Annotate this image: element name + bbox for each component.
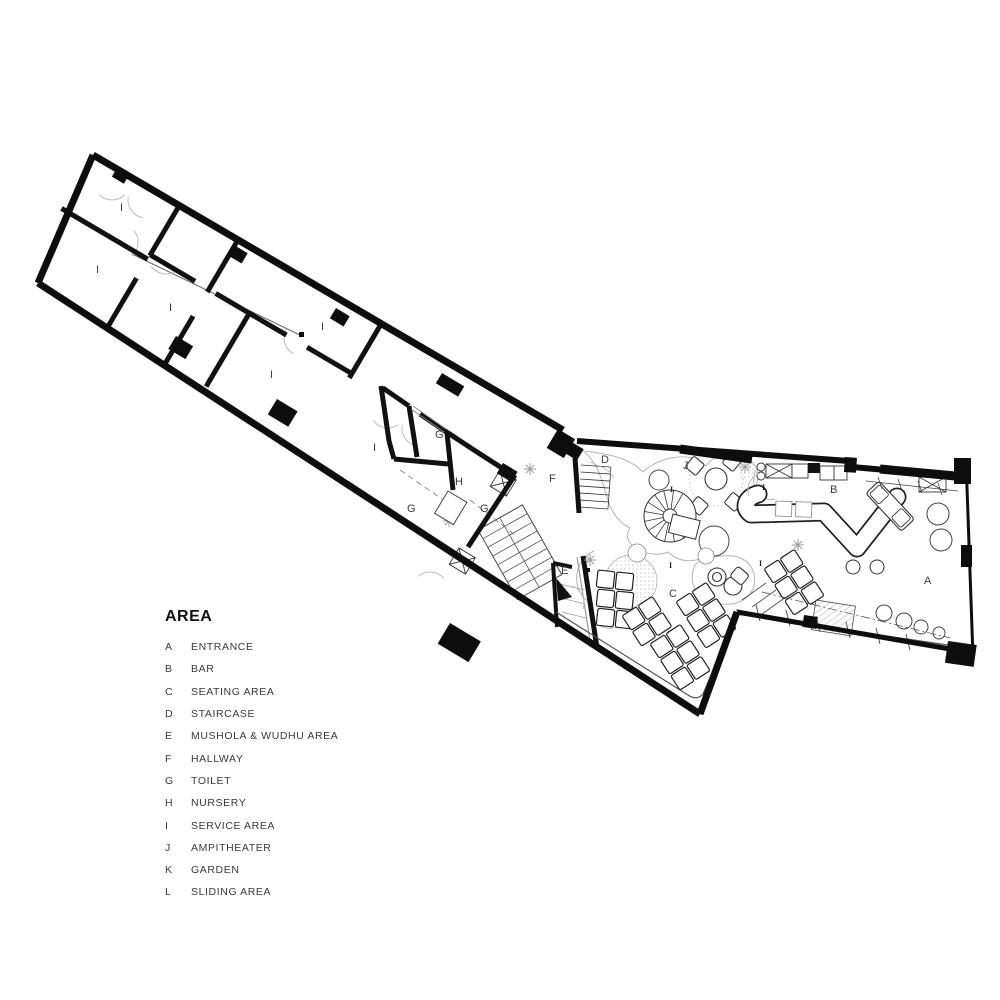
- plan-label-H: H: [455, 476, 463, 488]
- legend-item: L SLIDING AREA: [165, 881, 425, 903]
- legend: AREA A ENTRANCE B BAR C SEATING AREA D S…: [165, 608, 425, 904]
- legend-item: C SEATING AREA: [165, 681, 425, 703]
- legend-item-key: G: [165, 775, 191, 787]
- legend-item-label: TOILET: [191, 775, 425, 787]
- legend-item-key: I: [165, 820, 191, 832]
- plan-label-G: G: [480, 503, 489, 515]
- legend-item-key: K: [165, 864, 191, 876]
- legend-item-label: SEATING AREA: [191, 686, 425, 698]
- spiral-staircase: [644, 490, 700, 542]
- plan-label-I: I: [762, 483, 765, 492]
- legend-item-label: ENTRANCE: [191, 641, 425, 653]
- legend-item-label: SERVICE AREA: [191, 820, 425, 832]
- plan-label-I: I: [669, 561, 672, 570]
- plan-label-C: C: [669, 588, 677, 600]
- legend-item: H NURSERY: [165, 792, 425, 814]
- legend-item-key: H: [165, 797, 191, 809]
- floorplan-canvas: ABCDEFGGGHJIIIIIIIIII AREA A ENTRANCE B …: [0, 0, 1000, 1000]
- legend-item: E MUSHOLA & WUDHU AREA: [165, 725, 425, 747]
- plan-label-A: A: [924, 575, 932, 587]
- legend-item-label: STAIRCASE: [191, 708, 425, 720]
- legend-item-key: B: [165, 663, 191, 675]
- legend-item: J AMPITHEATER: [165, 837, 425, 859]
- plan-label-D: D: [601, 454, 609, 466]
- legend-item-label: BAR: [191, 663, 425, 675]
- legend-item: K GARDEN: [165, 859, 425, 881]
- staircase-main: [478, 505, 562, 600]
- plan-label-I: I: [96, 264, 100, 276]
- legend-item: F HALLWAY: [165, 747, 425, 769]
- legend-item-label: MUSHOLA & WUDHU AREA: [191, 730, 425, 742]
- legend-item-key: D: [165, 708, 191, 720]
- legend-item-label: NURSERY: [191, 797, 425, 809]
- plan-label-G: G: [435, 429, 444, 441]
- staircase-d: [578, 462, 614, 509]
- legend-item-key: L: [165, 886, 191, 898]
- legend-item-key: C: [165, 686, 191, 698]
- plan-label-E: E: [561, 565, 569, 577]
- legend-item-label: AMPITHEATER: [191, 842, 425, 854]
- legend-item-label: HALLWAY: [191, 753, 425, 765]
- plan-label-B: B: [830, 484, 838, 496]
- legend-item-label: SLIDING AREA: [191, 886, 425, 898]
- door-arcs: [99, 182, 766, 609]
- plan-label-F: F: [549, 473, 556, 485]
- legend-item: A ENTRANCE: [165, 636, 425, 658]
- lounge-set: [708, 566, 749, 595]
- legend-item-label: GARDEN: [191, 864, 425, 876]
- legend-item: I SERVICE AREA: [165, 814, 425, 836]
- legend-rows: A ENTRANCE B BAR C SEATING AREA D STAIRC…: [165, 636, 425, 904]
- legend-item-key: F: [165, 753, 191, 765]
- plan-label-I: I: [373, 442, 377, 454]
- plan-label-I: I: [670, 485, 673, 494]
- plan-label-I: I: [120, 202, 124, 214]
- plan-label-I: I: [169, 302, 173, 314]
- plan-label-I: I: [759, 559, 762, 568]
- plan-label-G: G: [407, 503, 416, 515]
- legend-item: G TOILET: [165, 770, 425, 792]
- legend-title: AREA: [165, 608, 425, 626]
- floorplan-drawing: ABCDEFGGGHJIIIIIIIIII: [0, 0, 1000, 1000]
- legend-item-key: E: [165, 730, 191, 742]
- legend-item: B BAR: [165, 658, 425, 680]
- legend-item-key: A: [165, 641, 191, 653]
- plan-label-J: J: [683, 460, 689, 472]
- legend-item: D STAIRCASE: [165, 703, 425, 725]
- plan-label-I: I: [270, 369, 274, 381]
- legend-item-key: J: [165, 842, 191, 854]
- plan-label-I: I: [321, 321, 325, 333]
